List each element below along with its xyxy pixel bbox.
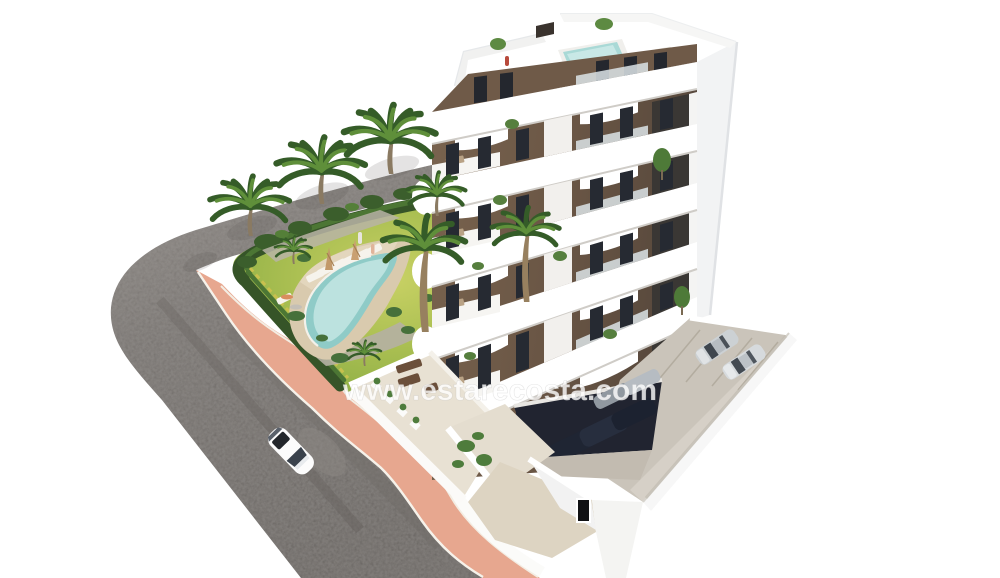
svg-text:www.estarecosta.com: www.estarecosta.com <box>342 374 657 407</box>
